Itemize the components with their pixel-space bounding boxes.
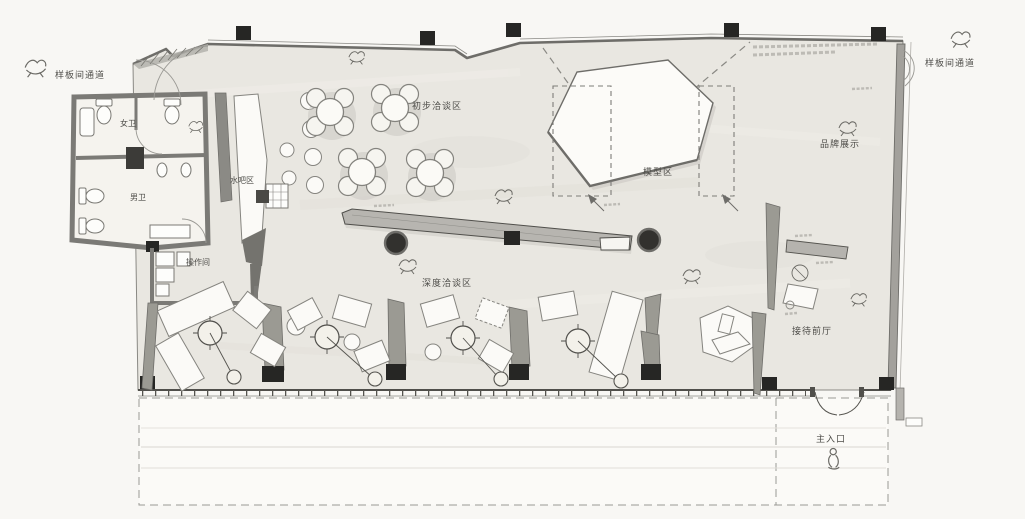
round-table-group xyxy=(307,89,357,141)
urinal-fixture xyxy=(181,163,191,177)
toilet-fixture xyxy=(164,99,180,124)
bar-stool xyxy=(307,177,324,194)
label-corridor-right: 样板间通道 xyxy=(925,57,975,68)
toilet-fixture xyxy=(96,99,112,124)
label-corridor-left: 样板间通道 xyxy=(55,69,105,80)
bar-stool xyxy=(305,149,322,166)
floor-plan-drawing: 样板间通道 样板间通道 女卫 男卫 水吧区 操作间 初步洽谈区 深度洽谈区 模型… xyxy=(0,0,1025,519)
label-initial-negotiation: 初步洽谈区 xyxy=(412,100,462,111)
sink-counter xyxy=(80,108,94,136)
round-table-group xyxy=(407,150,457,202)
label-womens-wc: 女卫 xyxy=(120,118,136,128)
floor-plan-page: 样板间通道 样板间通道 女卫 男卫 水吧区 操作间 初步洽谈区 深度洽谈区 模型… xyxy=(0,0,1025,519)
wc-counter xyxy=(150,225,190,238)
toilet-fixture xyxy=(79,188,104,204)
entry-plaza xyxy=(139,398,888,505)
planter xyxy=(638,229,660,251)
label-operation-room: 操作间 xyxy=(186,257,210,267)
label-mens-wc: 男卫 xyxy=(130,193,146,202)
label-model-area: 模型区 xyxy=(643,167,673,177)
label-deep-negotiation: 深度洽谈区 xyxy=(422,277,472,288)
urinal-fixture xyxy=(157,163,167,177)
planter xyxy=(385,232,407,254)
label-brand-display: 品牌展示 xyxy=(820,138,860,149)
toilet-block xyxy=(72,94,208,252)
label-water-bar: 水吧区 xyxy=(230,175,254,185)
round-table-group xyxy=(339,149,389,201)
toilet-fixture xyxy=(79,218,104,234)
label-reception-hall: 接待前厅 xyxy=(792,325,832,336)
label-main-entrance: 主入口 xyxy=(816,433,846,444)
